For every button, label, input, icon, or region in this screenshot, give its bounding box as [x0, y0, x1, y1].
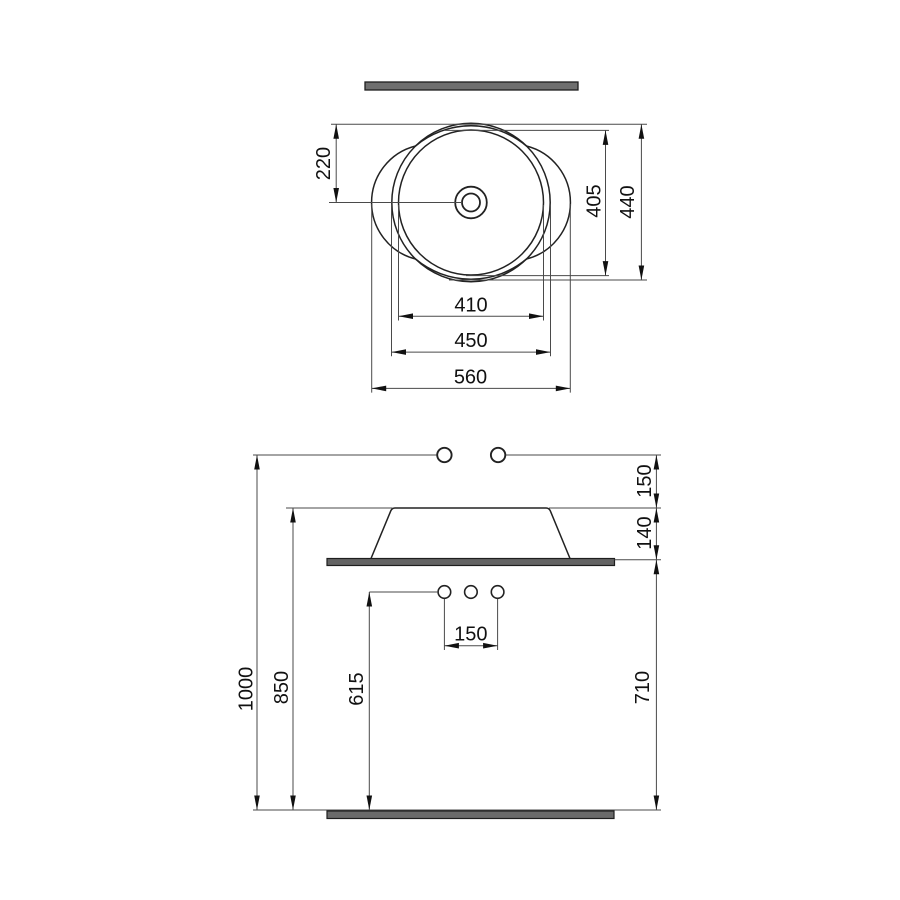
svg-text:150: 150: [454, 624, 487, 646]
svg-text:140: 140: [634, 516, 656, 549]
svg-text:405: 405: [584, 184, 606, 217]
svg-text:850: 850: [271, 671, 293, 704]
svg-text:440: 440: [617, 185, 639, 218]
svg-text:410: 410: [454, 295, 487, 317]
svg-text:220: 220: [313, 147, 335, 180]
svg-text:150: 150: [634, 464, 656, 497]
svg-text:450: 450: [454, 330, 487, 352]
svg-text:1000: 1000: [236, 667, 258, 712]
svg-text:560: 560: [454, 367, 487, 389]
svg-text:710: 710: [632, 671, 654, 704]
svg-text:615: 615: [346, 672, 368, 705]
